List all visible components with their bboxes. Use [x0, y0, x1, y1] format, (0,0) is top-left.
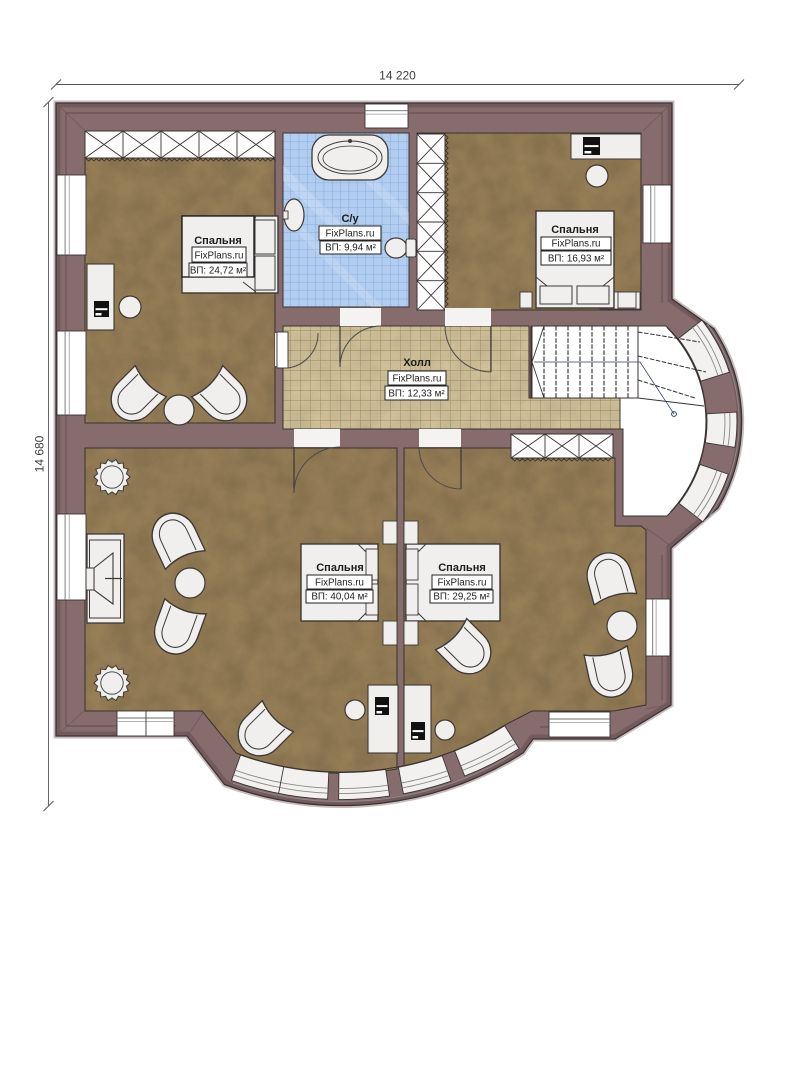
svg-text:14 680: 14 680	[33, 435, 47, 472]
svg-text:ВП: 40,04 м²: ВП: 40,04 м²	[311, 592, 368, 603]
svg-text:Спальня: Спальня	[438, 562, 486, 574]
svg-text:Спальня: Спальня	[551, 224, 599, 236]
svg-text:Спальня: Спальня	[194, 235, 242, 247]
svg-text:ВП: 24,72 м²: ВП: 24,72 м²	[190, 266, 247, 277]
svg-text:С/у: С/у	[341, 213, 359, 225]
svg-text:14 220: 14 220	[379, 69, 416, 83]
svg-text:FixPlans.ru: FixPlans.ru	[438, 578, 487, 589]
svg-text:FixPlans.ru: FixPlans.ru	[393, 374, 442, 385]
svg-text:FixPlans.ru: FixPlans.ru	[195, 251, 244, 262]
svg-text:FixPlans.ru: FixPlans.ru	[326, 229, 375, 240]
svg-text:FixPlans.ru: FixPlans.ru	[552, 239, 601, 250]
svg-text:ВП: 12,33 м²: ВП: 12,33 м²	[388, 389, 445, 400]
svg-text:ВП: 29,25 м²: ВП: 29,25 м²	[433, 592, 490, 603]
svg-text:Холл: Холл	[403, 357, 431, 369]
svg-text:ВП: 16,93 м²: ВП: 16,93 м²	[548, 254, 605, 265]
svg-text:ВП: 9,94 м²: ВП: 9,94 м²	[325, 243, 377, 254]
svg-text:Спальня: Спальня	[316, 562, 364, 574]
svg-text:FixPlans.ru: FixPlans.ru	[315, 578, 364, 589]
